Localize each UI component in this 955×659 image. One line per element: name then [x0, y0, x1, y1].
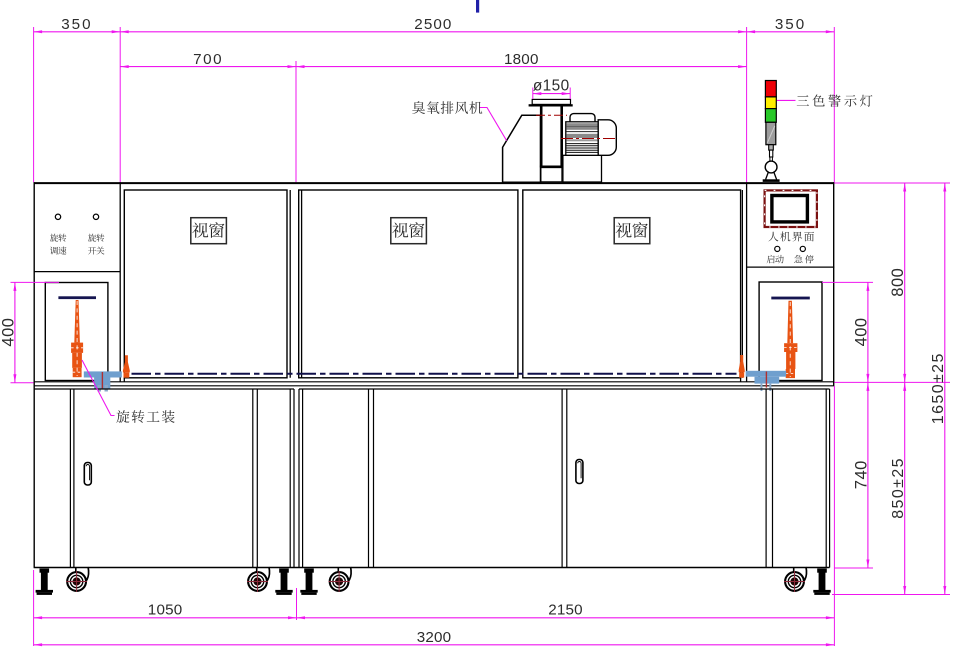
- svg-text:1800: 1800: [504, 51, 539, 68]
- svg-text:350: 350: [775, 16, 806, 33]
- svg-text:400: 400: [852, 317, 870, 346]
- svg-text:2150: 2150: [548, 601, 583, 618]
- svg-text:ø150: ø150: [533, 77, 570, 94]
- svg-text:400: 400: [0, 318, 17, 347]
- svg-text:740: 740: [852, 460, 870, 489]
- svg-text:800: 800: [889, 268, 907, 297]
- svg-text:1050: 1050: [148, 601, 183, 618]
- svg-text:3200: 3200: [417, 629, 452, 646]
- svg-text:1650±25: 1650±25: [930, 352, 947, 424]
- svg-text:850±25: 850±25: [890, 457, 907, 519]
- svg-text:2500: 2500: [414, 16, 452, 33]
- svg-text:700: 700: [193, 51, 223, 68]
- svg-text:350: 350: [61, 16, 92, 33]
